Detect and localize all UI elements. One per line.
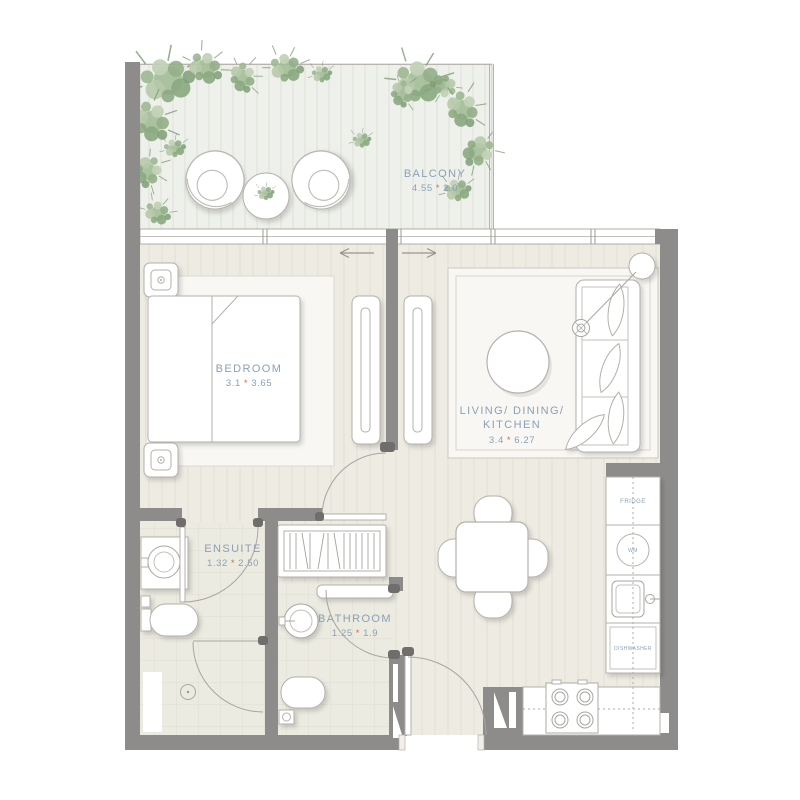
shower-door-hinge [258,636,268,645]
wall-bedroom-south-a [140,508,182,521]
bedroom-door-leaf [322,514,386,520]
cooktop-knob [552,680,561,684]
wall-right [660,229,678,750]
floor-plan-drawing: BALCONY 4.55*2.0 [0,0,800,800]
bathroom-toilet [281,677,325,708]
cooktop [546,680,598,733]
entrance-jamb-right [478,735,484,750]
ensuite-toilet [150,604,198,636]
entrance-opening [400,736,483,749]
bathroom-faucet [279,617,285,625]
floor-plan: BALCONY 4.55*2.0 [0,0,800,800]
wardrobe-living-side [404,296,432,444]
toilet-paper-holder [141,596,150,607]
living-label-line1: LIVING/ DINING/ [460,405,565,417]
ensuite-faucet [141,558,148,567]
wall-entry-right-block [483,687,523,737]
entrance-jamb-left [399,735,405,750]
wall-left [125,62,140,750]
ensuite-door-hinge [176,518,186,527]
wall-ensuite-bathroom [265,521,278,735]
window-jamb [386,229,398,244]
closet-box [278,525,386,577]
entrance-door-hinge [402,647,414,656]
wall-bedroom-south-b [258,508,322,521]
wall-bottom-left [125,735,400,750]
shower-niche [143,672,162,732]
balcony-dimensions: 4.55*2.0 [412,183,458,194]
wardrobe-bedroom-side [352,296,380,444]
balcony-label: BALCONY [404,168,466,180]
bedroom-door-hinge [380,442,395,452]
entrance-door-leaf [405,655,411,735]
ensuite-basin [148,546,180,578]
balcony-table [243,173,289,219]
wall-bottom-right [483,735,678,750]
bathroom-door-hinge-bottom [388,650,400,659]
cooktop-knob [578,680,587,684]
shelf-rail [317,585,393,598]
living-room: LIVING/ DINING/ KITCHEN 3.4*6.27 [448,253,658,458]
bathroom-toilet-tank [279,710,294,724]
living-label-line2: KITCHEN [483,419,541,431]
wall-slot-2 [509,692,516,728]
wall-top-right-block [655,229,678,244]
coffee-table [487,331,549,393]
bathroom-label: BATHROOM [318,613,392,625]
bathroom-door-hinge-top [388,584,400,593]
window-band [140,229,660,244]
wall-kitchen-stub [606,463,660,477]
bedroom-label: BEDROOM [216,363,283,375]
ensuite-door-leaf [180,527,185,602]
wall-slot-1 [393,664,398,702]
wall-bedroom-living-divider [386,244,398,450]
dining-table [456,522,528,592]
